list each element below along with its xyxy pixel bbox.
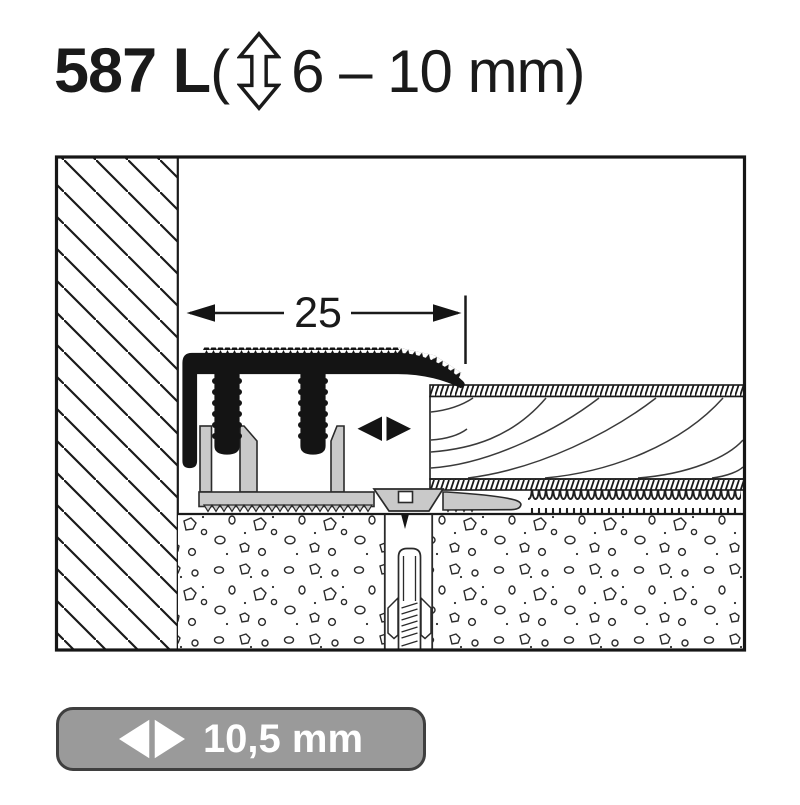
paren-close: ) <box>566 37 585 106</box>
width-badge: 10,5 mm <box>56 707 426 771</box>
stippled-screed <box>178 514 744 649</box>
wall-hatched <box>58 159 178 649</box>
badge-width-label: 10,5 mm <box>203 717 363 762</box>
left-right-arrows-icon <box>119 719 185 759</box>
barbed-leg <box>301 370 325 454</box>
dimension-arrowhead-left <box>187 304 216 321</box>
wood-flooring-plank <box>430 385 744 490</box>
resilient-underlay <box>528 491 741 515</box>
dimension-label: 25 <box>294 289 342 337</box>
height-range: 6 – 10 mm <box>291 37 565 106</box>
paren-open: ( <box>210 37 229 106</box>
left-right-arrows-icon <box>358 417 412 442</box>
cross-section-svg: 25 <box>0 0 800 800</box>
black-top-profile <box>183 348 464 468</box>
up-down-arrow-icon <box>237 30 281 112</box>
barbed-leg <box>215 370 239 454</box>
screw-drive-socket <box>399 492 413 503</box>
dimension-arrowhead-right <box>433 304 462 321</box>
profile-cross-section-diagram: 25 <box>0 0 800 800</box>
product-title: 587 L ( 6 – 10 mm ) <box>54 26 585 116</box>
serrated-base-left <box>204 505 372 512</box>
base-tongue <box>443 492 521 510</box>
product-model: 587 L <box>54 35 210 107</box>
